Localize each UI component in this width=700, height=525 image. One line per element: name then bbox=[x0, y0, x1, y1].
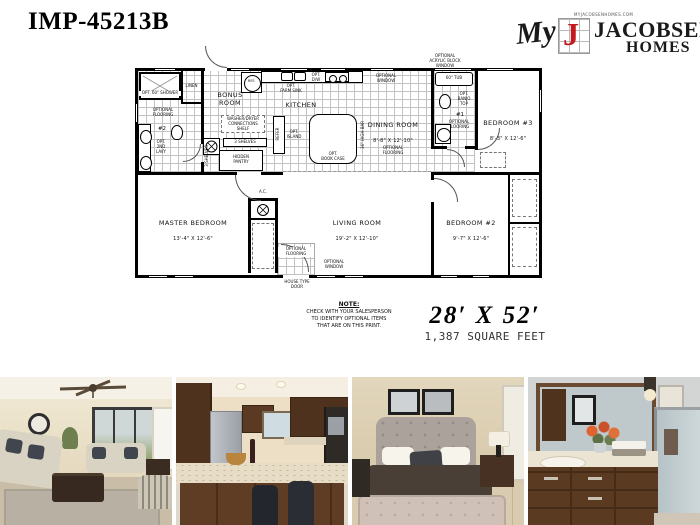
label-opt-dw: OPT. D/W bbox=[309, 73, 323, 83]
lamp-base bbox=[496, 445, 501, 457]
label-bath2-number: #2 bbox=[155, 126, 169, 133]
label-optional-flooring-bath2: OPTIONAL FLOORING bbox=[143, 108, 183, 118]
floor-plan: OPT. 60" SHOWER LINEN OPTIONAL FLOORING … bbox=[135, 68, 542, 278]
range-icon bbox=[325, 72, 349, 82]
wall bbox=[508, 222, 542, 224]
wall bbox=[431, 172, 542, 175]
square-feet: 1,387 SQUARE FEET bbox=[400, 330, 570, 343]
wall bbox=[248, 218, 278, 220]
wall bbox=[508, 175, 510, 275]
spec-sheet: IMP-45213B MYJACOBSENHOMES.COM My J JACO… bbox=[0, 0, 700, 525]
room-name-living: LIVING ROOM bbox=[307, 220, 407, 228]
label-optional-flooring-dining: OPTIONAL FLOORING bbox=[375, 146, 411, 156]
label-optional-window-dining: OPTIONAL WINDOW bbox=[371, 74, 401, 84]
window-marker bbox=[231, 68, 249, 71]
label-opt-farm-sink: OPT. FARM SINK bbox=[277, 84, 305, 94]
window-marker bbox=[317, 275, 335, 278]
coffee-table bbox=[52, 473, 104, 502]
closet-shelf bbox=[480, 152, 506, 168]
label-opt-island: OPT. ISLAND bbox=[281, 130, 307, 140]
note-title: NOTE: bbox=[293, 301, 405, 308]
window-marker bbox=[435, 68, 471, 71]
shower-enclosure bbox=[654, 407, 700, 520]
room-dims-master: 13'-4" X 12'-6" bbox=[143, 236, 243, 242]
photo-kitchen bbox=[176, 377, 348, 525]
label-ac: A.C. bbox=[247, 190, 279, 195]
wall bbox=[181, 102, 203, 104]
bar-stool bbox=[252, 485, 278, 525]
label-opt-banjo-top: OPT. BANJO TOP bbox=[455, 92, 473, 106]
photo-bedroom bbox=[352, 377, 524, 525]
shower-towel bbox=[664, 429, 678, 455]
side-table bbox=[146, 459, 170, 475]
label-opt-book-case: OPT. BOOK CASE bbox=[317, 152, 349, 162]
model-number: IMP-45213B bbox=[28, 8, 169, 36]
wall bbox=[201, 68, 204, 144]
label-acrylic-window: OPTIONAL ACRYLIC BLOCK WINDOW bbox=[417, 54, 473, 68]
logo-name-homes: HOMES bbox=[626, 39, 691, 57]
wall bbox=[275, 198, 278, 273]
label-washer-dryer: WASHER/DRYER CONNECTIONS SHELF bbox=[221, 117, 265, 131]
window-marker bbox=[487, 68, 513, 71]
fruit-basket bbox=[226, 453, 246, 465]
window-marker bbox=[371, 68, 393, 71]
closet-shelf bbox=[252, 223, 274, 269]
room-dims-bedroom3: 8'-3" X 12'-6" bbox=[476, 136, 540, 142]
door-arc bbox=[205, 46, 227, 68]
shower bbox=[139, 72, 181, 100]
wall bbox=[261, 172, 283, 175]
upholstered-footboard bbox=[358, 495, 506, 525]
brand-logo: MYJACOBSENHOMES.COM My J JACOBSEN HOMES bbox=[516, 12, 688, 62]
door-opening bbox=[283, 275, 309, 278]
wall bbox=[431, 202, 434, 278]
throw-pillow bbox=[27, 444, 45, 460]
tile-edge bbox=[283, 171, 431, 172]
salesperson-note: NOTE: CHECK WITH YOUR SALESPERSON TO IDE… bbox=[293, 301, 405, 329]
window-marker bbox=[345, 275, 363, 278]
island-countertop bbox=[176, 463, 348, 485]
vanity-light-globe bbox=[644, 389, 656, 401]
wall-art-frame bbox=[388, 389, 420, 415]
drawer-handle bbox=[588, 497, 602, 500]
accent-chair bbox=[138, 475, 172, 509]
label-linen: LINEN bbox=[182, 84, 201, 89]
recessed-light-icon bbox=[276, 381, 286, 388]
nightstand bbox=[480, 455, 514, 487]
logo-letter-j: J bbox=[563, 17, 579, 51]
throw-pillow bbox=[92, 447, 106, 459]
room-dims-dining: 8'-8" X 12'-10" bbox=[361, 138, 425, 144]
wall bbox=[135, 172, 237, 175]
room-dims-living: 19'-2" X 12'-10" bbox=[307, 236, 407, 242]
room-label-bedroom3: BEDROOM #3 8'-3" X 12'-6" bbox=[476, 112, 540, 150]
plant bbox=[62, 427, 78, 449]
logo-grid-icon: J bbox=[558, 18, 590, 54]
closet-shelf bbox=[512, 179, 537, 217]
logo-script-my: My bbox=[514, 14, 557, 52]
door-opening bbox=[205, 68, 227, 71]
drawer-handle bbox=[544, 477, 558, 480]
room-name-dining: DINING ROOM bbox=[361, 122, 425, 130]
towel-stack bbox=[612, 441, 646, 449]
room-label-bonus: BONUS ROOM bbox=[210, 92, 250, 108]
label-shelves-vertical: 3 SHELVES bbox=[205, 142, 210, 170]
recessed-light-icon bbox=[236, 383, 246, 390]
window-marker bbox=[473, 275, 489, 278]
label-tub: 60" TUB bbox=[435, 76, 473, 81]
wall bbox=[248, 198, 251, 273]
mirror-reflection-cabinet bbox=[542, 389, 566, 441]
wall bbox=[431, 146, 447, 149]
towel-stack bbox=[612, 449, 646, 456]
home-dimensions: 28′ X 52′ bbox=[400, 302, 570, 330]
closet-shelf bbox=[512, 227, 537, 267]
window-marker bbox=[539, 90, 542, 112]
label-ref: REF. bbox=[241, 79, 262, 83]
window bbox=[658, 385, 684, 409]
label-opt-2nd-lavy: OPT. 2ND LAVY bbox=[152, 140, 170, 154]
room-label-kitchen: KITCHEN bbox=[281, 102, 321, 110]
wall bbox=[431, 68, 434, 148]
floor bbox=[654, 513, 700, 525]
label-opt-shower: OPT. 60" SHOWER bbox=[139, 91, 181, 96]
oven-steel-panel bbox=[328, 417, 344, 435]
room-dims-bedroom2: 9'-7" X 12'-6" bbox=[435, 236, 507, 242]
pillow bbox=[440, 447, 470, 465]
window-marker bbox=[135, 104, 138, 122]
photo-living-room bbox=[0, 377, 172, 525]
label-optional-window-living: OPTIONAL WINDOW bbox=[319, 260, 349, 270]
window-marker bbox=[149, 275, 167, 278]
toilet-icon bbox=[439, 94, 451, 109]
door-arc bbox=[235, 175, 261, 201]
toilet-icon bbox=[171, 125, 183, 140]
room-label-master: MASTER BEDROOM 13'-4" X 12'-6" bbox=[143, 212, 243, 250]
label-hidden-pantry: HIDDEN PANTRY bbox=[219, 155, 263, 165]
wall-clock-icon bbox=[28, 413, 50, 435]
room-name-bedroom3: BEDROOM #3 bbox=[476, 120, 540, 128]
bar-stool bbox=[288, 481, 314, 525]
sink-icon bbox=[437, 128, 451, 142]
nightstand bbox=[352, 459, 370, 497]
label-optional-flooring-entry: OPTIONAL FLOORING bbox=[278, 247, 314, 257]
counter-right bbox=[284, 437, 326, 445]
throw-pillow bbox=[124, 447, 138, 459]
throw-pillow bbox=[5, 438, 23, 455]
farm-sink-icon bbox=[281, 72, 293, 81]
vanity-cabinet bbox=[528, 467, 658, 525]
note-body: CHECK WITH YOUR SALESPERSON TO IDENTIFY … bbox=[293, 309, 405, 329]
sink-icon bbox=[140, 156, 152, 170]
wall-art-frame bbox=[422, 389, 454, 415]
ac-unit-icon bbox=[256, 203, 270, 217]
room-label-bedroom2: BEDROOM #2 9'-7" X 12'-6" bbox=[435, 212, 507, 250]
drawer-handle bbox=[588, 477, 602, 480]
photo-bathroom bbox=[528, 377, 700, 525]
window-marker bbox=[441, 275, 457, 278]
window-marker bbox=[155, 68, 175, 71]
label-shelves: 3 SHELVES bbox=[223, 140, 267, 145]
label-bath1-number: #1 bbox=[453, 112, 467, 119]
window-marker bbox=[175, 275, 193, 278]
flower-vase bbox=[594, 443, 606, 453]
sink-icon bbox=[140, 130, 152, 144]
door-arc bbox=[434, 178, 458, 202]
room-name-bedroom2: BEDROOM #2 bbox=[435, 220, 507, 228]
label-house-type-door: HOUSE TYPE DOOR bbox=[277, 280, 317, 290]
room-name-master: MASTER BEDROOM bbox=[143, 220, 243, 228]
room-label-living: LIVING ROOM 19'-2" X 12'-10" bbox=[307, 212, 407, 250]
wine-bottle bbox=[250, 439, 255, 463]
ceiling-fan-icon bbox=[58, 379, 128, 399]
farm-sink-icon bbox=[294, 72, 306, 81]
